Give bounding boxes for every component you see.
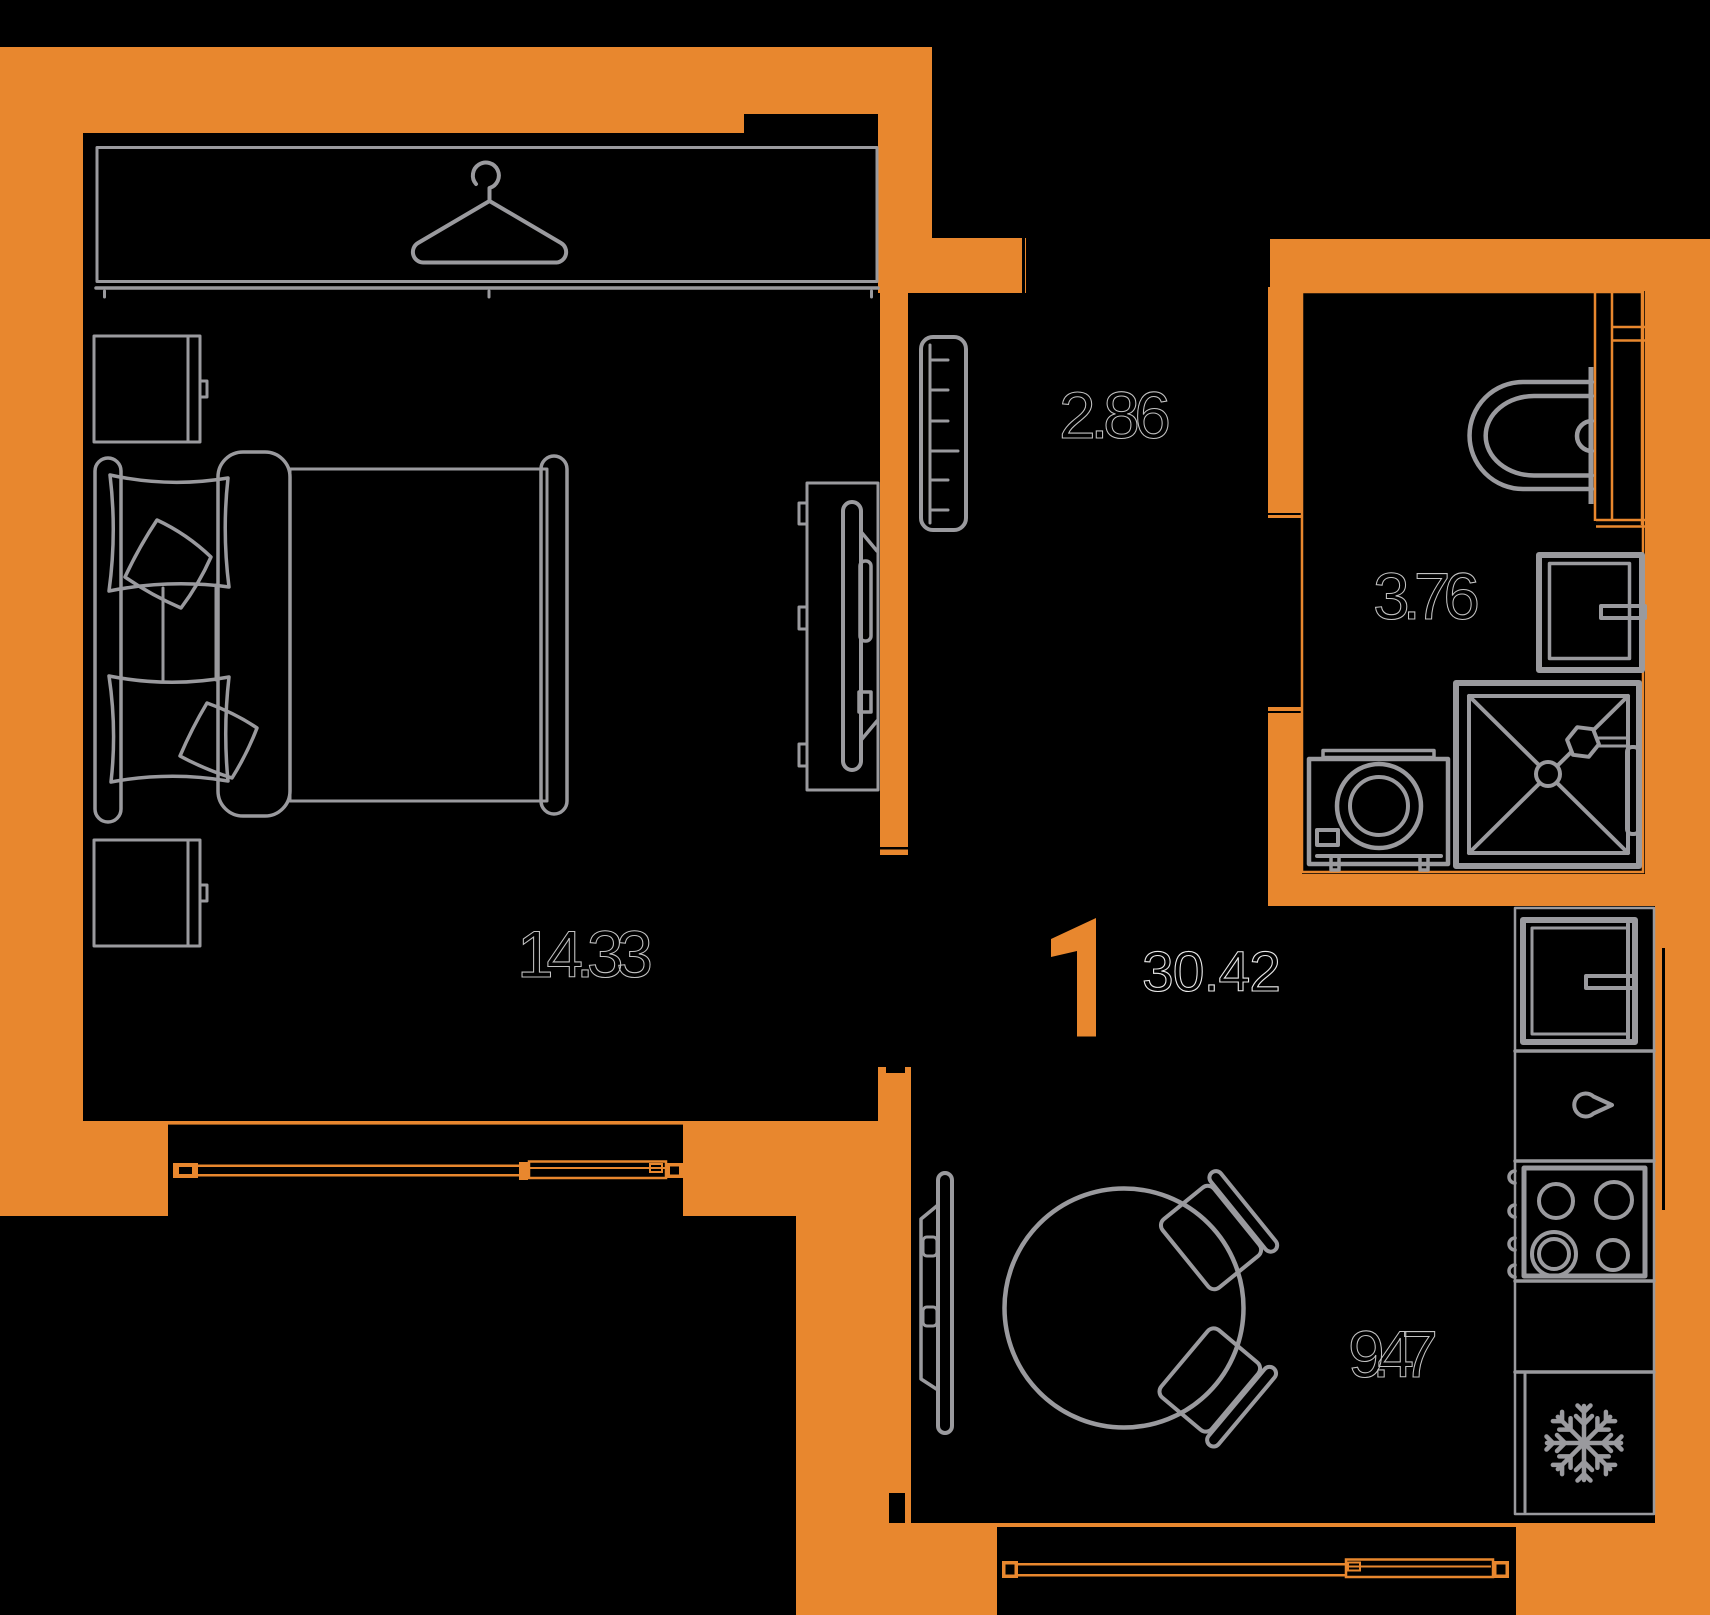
svg-text:2.86: 2.86 xyxy=(1059,378,1171,452)
svg-text:30.42: 30.42 xyxy=(1142,940,1281,1004)
svg-text:9.47: 9.47 xyxy=(1348,1317,1438,1391)
svg-text:3.76: 3.76 xyxy=(1373,559,1480,633)
svg-text:14.33: 14.33 xyxy=(517,917,653,991)
